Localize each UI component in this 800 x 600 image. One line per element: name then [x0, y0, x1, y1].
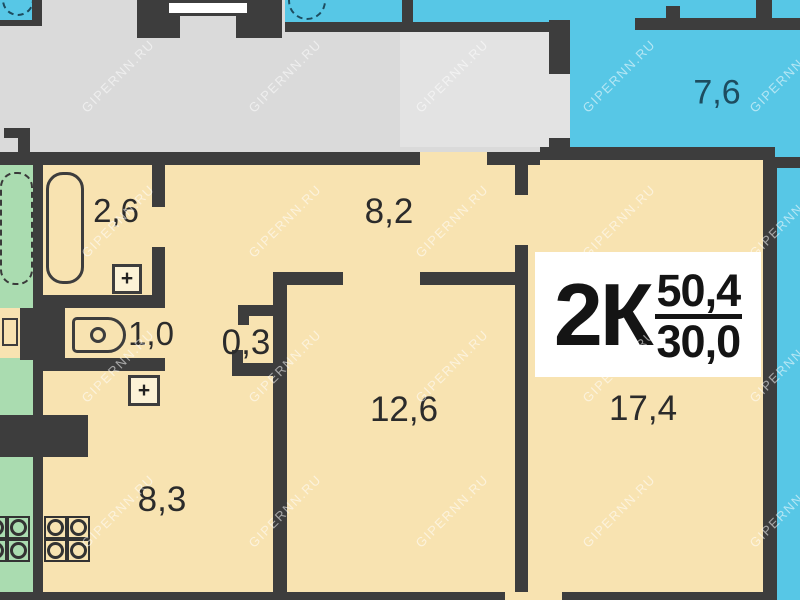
- wall: [152, 247, 165, 308]
- watermark-text: GIPERNN.RU: [580, 182, 659, 261]
- wall: [152, 165, 165, 207]
- watermark-text: GIPERNN.RU: [413, 182, 492, 261]
- watermark-text: GIPERNN.RU: [246, 182, 325, 261]
- watermark-text: GIPERNN.RU: [413, 472, 492, 551]
- wall: [0, 20, 42, 26]
- bathtub-icon: [46, 172, 84, 284]
- wall: [0, 152, 420, 165]
- wall: [0, 415, 88, 457]
- watermark-text: GIPERNN.RU: [580, 472, 659, 551]
- wall: [18, 132, 30, 154]
- electrical-panel-icon: +: [112, 264, 142, 294]
- toilet-icon: [90, 327, 106, 343]
- room-area-label-bedroom: 12,6: [370, 390, 438, 430]
- electrical-panel-icon: +: [128, 375, 160, 406]
- wall: [635, 18, 800, 30]
- wall: [515, 152, 528, 195]
- room-area-label-neighbor: 7,6: [693, 74, 740, 113]
- apartment-summary-box: 2К 50,4 30,0: [535, 252, 761, 377]
- window-opening: [505, 592, 562, 600]
- wall: [20, 308, 65, 360]
- wall: [33, 165, 43, 592]
- wall: [549, 20, 570, 74]
- wall: [756, 0, 772, 30]
- area-fraction: 50,4 30,0: [655, 268, 743, 364]
- wall: [666, 6, 680, 18]
- room-area-label-wc: 1,0: [128, 315, 174, 353]
- entry-door-opening: [420, 152, 487, 165]
- wall: [402, 0, 413, 22]
- room-area-label-living-room: 17,4: [609, 389, 677, 429]
- stove-icon: [44, 516, 90, 562]
- plus-symbol: +: [121, 267, 133, 291]
- wall: [273, 272, 287, 600]
- vent-shaft-icon: [2, 318, 18, 346]
- neighbor-room-area: [552, 32, 800, 152]
- wall: [273, 272, 343, 285]
- room-area-label-closet: 0,3: [222, 323, 271, 363]
- rooms-count-label: 2К: [554, 271, 651, 359]
- floor-plan: + + 2,6 8,2 1,0 0,3 12,6 17,4 8,3 7,6 2К…: [0, 0, 800, 600]
- total-area-value: 50,4: [655, 268, 743, 319]
- wall: [285, 22, 570, 32]
- room-area-label-hallway: 8,2: [365, 192, 414, 232]
- neighbor-bathtub-icon: [0, 172, 33, 285]
- wall: [238, 305, 249, 325]
- neighbor-stove-icon: [0, 516, 30, 562]
- wall: [540, 147, 775, 160]
- wall: [763, 163, 777, 592]
- elevator-car: [166, 0, 250, 16]
- stairwell-area: [400, 32, 552, 147]
- wall: [487, 152, 540, 165]
- neighbor-right-strip: [775, 152, 800, 600]
- wall: [33, 358, 165, 371]
- door-opening: [549, 74, 570, 138]
- wall: [0, 592, 777, 600]
- room-area-label-kitchen: 8,3: [138, 480, 187, 520]
- plus-symbol: +: [138, 379, 150, 403]
- wall: [420, 272, 517, 285]
- room-area-label-bathroom: 2,6: [93, 192, 139, 230]
- wall: [515, 245, 528, 600]
- wall: [43, 295, 153, 308]
- living-area-value: 30,0: [657, 319, 741, 364]
